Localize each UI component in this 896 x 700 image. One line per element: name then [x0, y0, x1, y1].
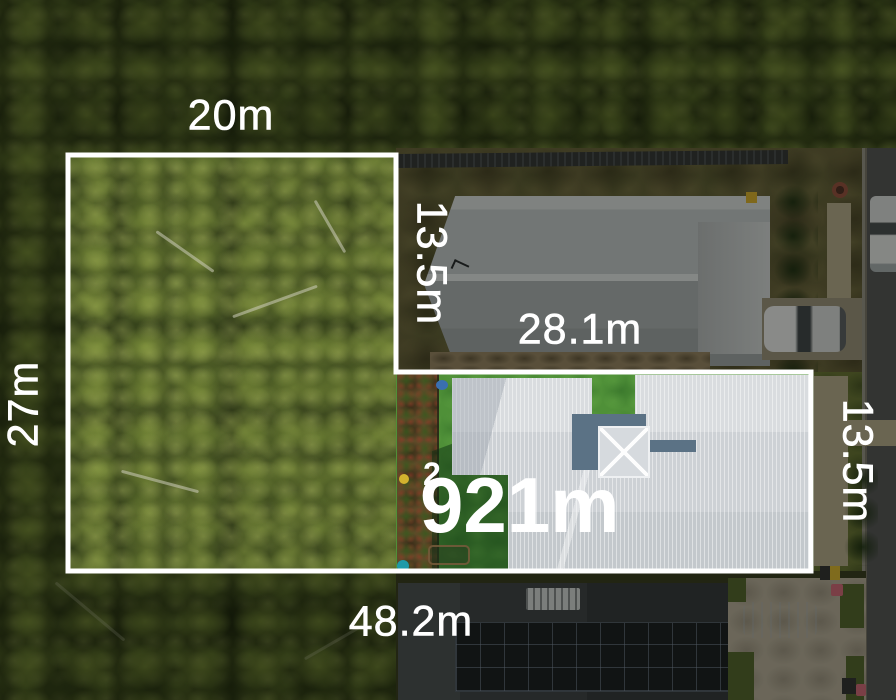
solar-panels [455, 622, 745, 692]
grass-patch [728, 578, 746, 602]
dimension-label-inner: 13.5m [407, 201, 456, 326]
dimension-label-top: 20m [188, 92, 275, 141]
aerial-photo: 20m 27m 13.5m 28.1m 13.5m 48.2m 921m 2 [0, 0, 896, 700]
wheelie-bin [842, 678, 856, 694]
area-superscript: 2 [423, 458, 441, 490]
grass-patch [840, 584, 864, 628]
dimension-label-left: 27m [0, 361, 49, 448]
wheelie-bin-yellow-lid [830, 566, 840, 580]
grass-patch [728, 652, 754, 700]
pink-bin [831, 584, 843, 596]
garden-toy [399, 474, 409, 484]
ac-unit [526, 588, 580, 610]
garden-toy [436, 380, 448, 390]
fire-pit [832, 182, 848, 198]
dimension-label-bottom: 48.2m [349, 598, 474, 647]
pink-bin [856, 684, 866, 696]
lot-bushland [68, 155, 396, 571]
area-value: 921m [420, 466, 620, 544]
footpath [827, 203, 851, 313]
white-car [764, 306, 846, 352]
dimension-label-right: 13.5m [833, 399, 882, 524]
wheelie-bin [820, 566, 830, 580]
parked-car [870, 196, 896, 272]
dark-vehicle [743, 602, 817, 638]
dimension-label-step: 28.1m [518, 306, 643, 355]
garden-box [746, 192, 757, 203]
neighbor-paving [430, 352, 710, 370]
flat-roof-section [648, 440, 696, 452]
neighbor-garage-roof [698, 222, 770, 354]
